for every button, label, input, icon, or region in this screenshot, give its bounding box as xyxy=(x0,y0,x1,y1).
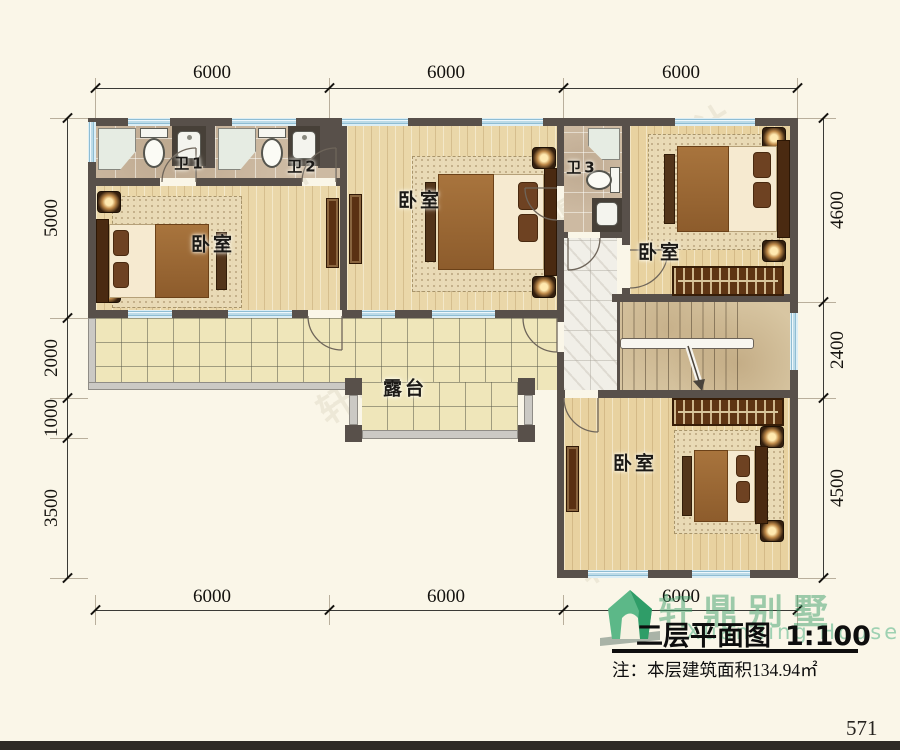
dim-label: 6000 xyxy=(662,62,700,84)
dim-label: 2400 xyxy=(827,331,849,369)
room-label-bedroom-bottom: 卧室 xyxy=(613,449,657,476)
dim-label: 1000 xyxy=(41,399,63,437)
dimension-line-right xyxy=(823,118,824,578)
extension-line xyxy=(798,302,836,303)
plan-title-text: 二层平面图 xyxy=(636,621,771,652)
room-label-bedroom-left: 卧室 xyxy=(191,230,235,257)
dim-label: 6000 xyxy=(193,62,231,84)
floor-plan-sheet: 轩鼎建筑设计 轩鼎建筑设计 轩鼎建筑设计 轩鼎建筑设计 xyxy=(0,0,900,750)
room-label-terrace: 露台 xyxy=(383,374,427,401)
room-label-bath1: 卫1 xyxy=(174,153,205,174)
title-underline xyxy=(612,649,858,653)
dimension-line-left xyxy=(67,118,68,578)
dim-label: 6000 xyxy=(427,62,465,84)
dim-label: 6000 xyxy=(427,586,465,608)
dim-label: 2000 xyxy=(41,339,63,377)
room-label-bath3: 卫3 xyxy=(566,157,597,178)
dim-label: 5000 xyxy=(41,199,63,237)
page-number: 571 xyxy=(846,716,878,741)
room-label-bath2: 卫2 xyxy=(287,156,318,177)
extension-line xyxy=(798,578,836,579)
footer-bar xyxy=(0,741,900,750)
extension-line xyxy=(797,78,798,118)
dim-label: 6000 xyxy=(193,586,231,608)
room-label-bedroom-middle: 卧室 xyxy=(398,186,442,213)
extension-line xyxy=(50,578,88,579)
extension-line xyxy=(50,438,88,439)
dimension-line-top xyxy=(95,88,797,89)
extension-line xyxy=(50,118,88,119)
dim-label: 4500 xyxy=(827,469,849,507)
plan-scale: 1:100 xyxy=(785,621,871,652)
extension-line xyxy=(95,78,96,118)
plan-title: 二层平面图1:100 xyxy=(636,614,871,653)
extension-line xyxy=(798,118,836,119)
extension-line xyxy=(563,78,564,118)
extension-line xyxy=(798,398,836,399)
dim-label: 3500 xyxy=(41,489,63,527)
room-label-bedroom-top-right: 卧室 xyxy=(638,238,682,265)
area-note: 注：本层建筑面积134.94㎡ xyxy=(612,657,818,682)
extension-line xyxy=(50,318,88,319)
extension-line xyxy=(329,78,330,118)
dim-label: 4600 xyxy=(827,191,849,229)
